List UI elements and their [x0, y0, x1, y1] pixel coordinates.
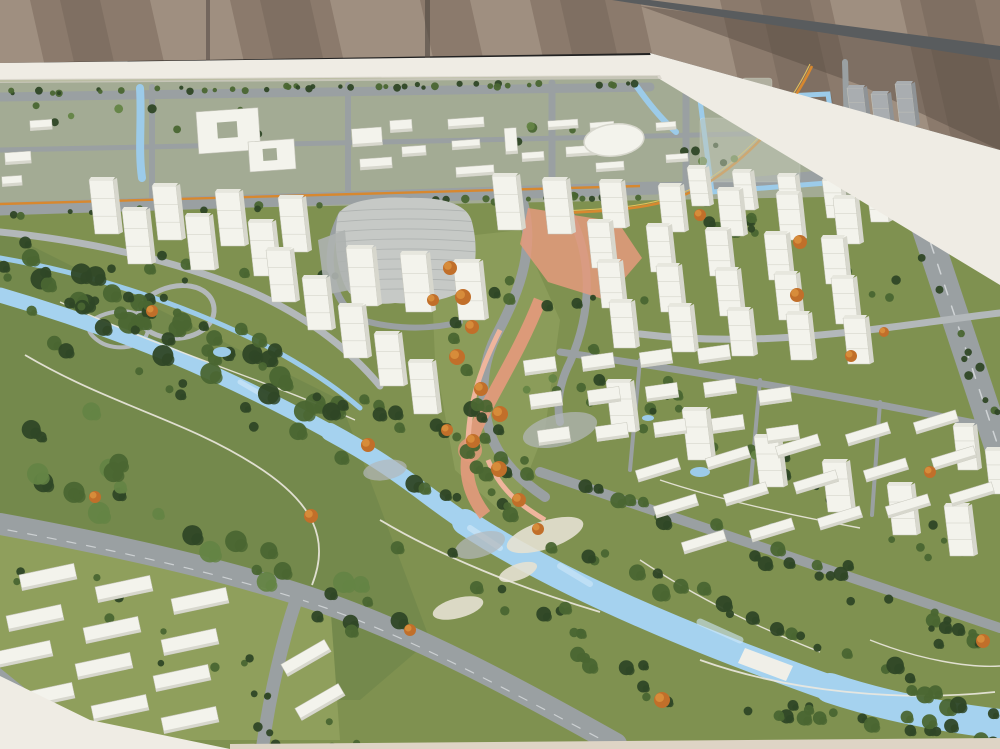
tower-roof: [774, 271, 798, 274]
tree: [657, 573, 663, 579]
tree: [869, 291, 876, 298]
tower-roof: [953, 423, 975, 426]
tower-roof: [985, 447, 1000, 450]
tree: [639, 424, 649, 434]
tower-roof: [705, 227, 729, 230]
tower-roof: [646, 223, 670, 226]
tree: [660, 591, 671, 602]
tree: [330, 592, 338, 600]
tree: [885, 293, 894, 302]
tree: [703, 587, 711, 595]
tower-roof: [374, 331, 400, 334]
tree: [191, 533, 203, 545]
tree: [3, 273, 11, 281]
tree: [505, 276, 515, 286]
tree: [245, 654, 253, 662]
tower-roof: [266, 247, 292, 250]
tower-roof: [248, 219, 274, 222]
tree: [500, 606, 509, 615]
tower-roof: [871, 91, 889, 94]
tower-roof: [821, 235, 845, 238]
building-box: [452, 139, 481, 150]
tree: [487, 83, 493, 89]
autumn-tree-highlight: [475, 383, 483, 391]
tree: [402, 84, 408, 90]
tree: [202, 88, 208, 94]
tree: [579, 196, 585, 202]
building-box: [351, 127, 382, 147]
tree: [523, 386, 531, 394]
tree: [415, 82, 420, 87]
tree: [351, 630, 359, 638]
tree: [808, 709, 814, 715]
tree: [313, 392, 322, 401]
tree: [37, 472, 50, 485]
tree: [77, 303, 85, 311]
tree: [33, 102, 40, 109]
autumn-tree-highlight: [305, 510, 313, 518]
tree: [938, 643, 944, 649]
autumn-tree-highlight: [442, 425, 449, 432]
building-roof: [504, 128, 518, 155]
tree: [41, 436, 48, 443]
tree: [477, 403, 485, 411]
tree: [452, 432, 461, 441]
tree: [48, 283, 57, 292]
tree: [91, 296, 100, 305]
tower-roof: [847, 85, 865, 88]
tree: [485, 473, 494, 482]
tree: [26, 257, 34, 265]
tree: [826, 571, 836, 581]
tree: [453, 493, 462, 502]
autumn-tree-highlight: [90, 492, 97, 499]
tree: [803, 717, 812, 726]
tree: [119, 493, 127, 501]
tree: [168, 338, 176, 346]
tower-roof: [668, 303, 692, 306]
tree: [209, 550, 222, 563]
autumn-tree-highlight: [405, 625, 412, 632]
tree: [626, 666, 635, 675]
tree: [935, 691, 943, 699]
tower-roof: [831, 275, 855, 278]
tree: [527, 83, 532, 88]
tower-roof: [609, 299, 633, 302]
tree: [244, 272, 250, 278]
tree: [200, 207, 208, 215]
tree: [149, 268, 156, 275]
tree: [744, 707, 753, 716]
building-box: [5, 151, 32, 165]
building-box: [402, 145, 427, 157]
tree: [576, 383, 586, 393]
autumn-tree-highlight: [466, 321, 474, 329]
tree: [847, 653, 853, 659]
building-box: [522, 151, 545, 162]
tree: [778, 715, 784, 721]
tower-roof: [895, 81, 913, 84]
tower-roof: [687, 165, 707, 168]
tree: [598, 488, 604, 494]
tower-roof: [764, 231, 788, 234]
tree: [158, 660, 165, 667]
tree: [424, 487, 431, 494]
tree: [399, 427, 405, 433]
tree: [173, 308, 182, 317]
tree: [8, 88, 14, 94]
tree: [911, 689, 918, 696]
tree: [748, 225, 755, 232]
tree: [906, 716, 914, 724]
tree: [383, 84, 388, 89]
building-box: [360, 157, 393, 170]
tree: [663, 521, 672, 530]
tree: [285, 382, 294, 391]
tree: [589, 664, 598, 673]
courtyard-building: [248, 139, 296, 172]
tower-roof: [822, 459, 848, 462]
tree: [871, 723, 880, 732]
building-box: [390, 119, 413, 133]
tree: [777, 548, 786, 557]
wall-seam: [425, 0, 430, 60]
tree: [341, 456, 350, 465]
tower-roof: [682, 407, 708, 410]
tree: [601, 549, 609, 557]
tree: [213, 88, 217, 92]
tree: [918, 254, 926, 262]
building-box: [504, 128, 518, 155]
tree: [585, 485, 593, 493]
tree: [297, 430, 308, 441]
tree: [421, 85, 425, 89]
tower-roof: [606, 379, 632, 382]
tree: [45, 271, 51, 277]
tree: [176, 327, 186, 337]
tree: [965, 349, 972, 356]
tree: [160, 294, 168, 302]
tree: [829, 708, 838, 717]
tree: [230, 86, 236, 92]
autumn-tree-highlight: [513, 494, 521, 502]
tree: [765, 562, 774, 571]
tree: [338, 84, 342, 88]
tree: [50, 90, 55, 95]
autumn-tree-highlight: [925, 467, 932, 474]
tree: [364, 399, 370, 405]
tree: [520, 456, 529, 465]
courtyard-hole: [217, 121, 238, 138]
tree: [461, 195, 469, 203]
tree: [395, 411, 404, 420]
tree: [367, 601, 373, 607]
tree: [796, 631, 805, 640]
building-box: [666, 153, 689, 163]
tree: [958, 330, 965, 337]
tree: [25, 241, 32, 248]
tower-roof: [408, 359, 434, 362]
building-box: [548, 119, 579, 130]
tree: [931, 609, 939, 617]
tree: [90, 410, 101, 421]
tower-roof: [599, 179, 623, 182]
tree: [342, 404, 349, 411]
tree: [993, 713, 1000, 720]
tower-roof: [786, 311, 810, 314]
tree: [157, 251, 167, 261]
autumn-tree-highlight: [846, 351, 853, 358]
tree: [266, 729, 273, 736]
tree: [643, 685, 650, 692]
tower-roof: [727, 307, 751, 310]
tree: [716, 523, 724, 531]
tree: [379, 413, 387, 421]
tower-roof: [215, 189, 241, 192]
tree: [506, 471, 513, 478]
tree: [73, 493, 80, 500]
tree: [527, 122, 535, 130]
tree: [317, 616, 324, 623]
tree: [951, 724, 959, 732]
tree: [144, 322, 152, 330]
tree: [486, 405, 494, 413]
tower-roof: [656, 263, 680, 266]
tree: [894, 664, 905, 675]
tree: [264, 693, 271, 700]
tree: [213, 337, 222, 346]
tree: [680, 585, 689, 594]
tree: [360, 583, 370, 593]
tree: [235, 539, 248, 552]
tree: [268, 357, 278, 367]
tree: [813, 644, 821, 652]
tree: [943, 616, 951, 624]
tree: [590, 295, 596, 301]
tree: [158, 513, 165, 520]
autumn-tree-highlight: [533, 524, 540, 531]
tree: [848, 564, 855, 571]
tree: [274, 349, 282, 357]
tower-roof: [185, 213, 211, 216]
tree: [726, 610, 734, 618]
tree: [482, 195, 489, 202]
tree: [588, 555, 596, 563]
tower-roof: [400, 251, 428, 254]
wall-seam: [206, 0, 210, 62]
tree: [593, 348, 599, 354]
tree: [113, 470, 125, 482]
tree: [253, 722, 263, 732]
autumn-tree-highlight: [791, 289, 799, 297]
tree: [326, 718, 333, 725]
autumn-tree-highlight: [456, 290, 465, 299]
tree: [254, 355, 261, 362]
tree: [180, 394, 186, 400]
tree: [691, 146, 700, 155]
tree: [473, 81, 479, 87]
tree: [481, 417, 487, 423]
tree: [107, 264, 116, 273]
tree: [596, 82, 603, 89]
tree: [494, 292, 501, 299]
tree: [268, 392, 281, 405]
tree: [916, 543, 925, 552]
tree: [549, 374, 558, 383]
tree: [565, 607, 573, 615]
autumn-tree-highlight: [880, 328, 886, 334]
tree: [494, 83, 501, 90]
tower-roof: [887, 482, 913, 485]
tree: [751, 217, 757, 223]
tower-roof: [89, 177, 115, 180]
tree: [526, 473, 534, 481]
tree: [251, 690, 258, 697]
tree: [846, 597, 855, 606]
tree: [498, 585, 507, 594]
landmark-terraced-building: [318, 198, 478, 304]
tower-roof: [776, 191, 800, 194]
tree: [888, 536, 895, 543]
tree: [964, 371, 973, 380]
tree: [928, 520, 937, 529]
tower-roof: [346, 245, 374, 248]
tree: [786, 715, 794, 723]
tree: [245, 406, 251, 412]
tree: [182, 277, 188, 283]
tree: [95, 274, 107, 286]
tree: [148, 104, 157, 113]
tree: [259, 339, 268, 348]
tree: [631, 80, 639, 88]
model-scene: [0, 0, 1000, 749]
building-box: [30, 119, 53, 131]
tree: [98, 89, 103, 94]
tree: [135, 367, 143, 375]
tree: [498, 429, 505, 436]
tree: [792, 704, 798, 710]
tree: [982, 397, 988, 403]
tree: [35, 87, 43, 95]
tree: [509, 298, 516, 305]
tree: [166, 385, 174, 393]
tree: [65, 349, 74, 358]
tree: [453, 337, 460, 344]
tree: [643, 664, 649, 670]
tree: [111, 292, 122, 303]
tree: [936, 286, 944, 294]
tower-roof: [278, 195, 304, 198]
tree: [581, 633, 587, 639]
tree: [173, 125, 181, 133]
tree: [840, 573, 848, 581]
scale-model-photo: [0, 0, 1000, 749]
tree: [242, 87, 249, 94]
tree: [186, 88, 193, 95]
tree: [924, 554, 932, 562]
tree: [445, 494, 452, 501]
tree: [330, 410, 341, 421]
tree: [505, 83, 511, 89]
tower-roof: [777, 173, 797, 176]
tree: [932, 727, 941, 736]
tree: [457, 81, 463, 87]
tree: [179, 86, 183, 90]
tree: [118, 87, 125, 94]
tree: [393, 84, 401, 92]
tree: [210, 371, 223, 384]
tree: [488, 488, 496, 496]
autumn-tree-highlight: [362, 439, 370, 447]
tree: [819, 717, 827, 725]
tree: [68, 113, 74, 119]
tower-roof: [658, 183, 682, 186]
tree: [526, 197, 531, 202]
tree: [347, 84, 354, 91]
tree: [120, 486, 128, 494]
autumn-tree-highlight: [977, 635, 985, 643]
tree: [17, 212, 25, 220]
tree: [635, 195, 641, 201]
autumn-tree-highlight: [695, 210, 702, 217]
tower-roof: [587, 219, 611, 222]
tree: [68, 209, 73, 214]
tower-roof: [453, 259, 481, 262]
tree: [343, 580, 356, 593]
tree: [958, 628, 966, 636]
tree: [466, 369, 473, 376]
tree: [241, 328, 249, 336]
tower-roof: [492, 173, 518, 176]
tree: [535, 80, 542, 87]
tree: [626, 81, 630, 85]
autumn-tree-highlight: [467, 435, 475, 443]
tree: [608, 81, 615, 88]
tree: [264, 87, 269, 92]
autumn-tree-highlight: [450, 350, 459, 359]
tree: [599, 379, 606, 386]
tower-roof: [717, 187, 741, 190]
tree: [642, 693, 650, 701]
tree: [817, 564, 823, 570]
tree: [551, 547, 558, 554]
tree: [178, 379, 187, 388]
tree: [945, 626, 953, 634]
tree: [310, 84, 315, 89]
tree: [910, 729, 917, 736]
tree: [476, 586, 484, 594]
tree: [588, 345, 594, 351]
tree: [789, 562, 796, 569]
tower-roof: [152, 183, 178, 186]
tree: [128, 296, 134, 302]
tree: [466, 450, 475, 459]
canal-topleft: [140, 88, 142, 178]
tree: [376, 83, 383, 90]
tree: [752, 617, 760, 625]
tower-roof: [122, 207, 148, 210]
tree: [452, 552, 458, 558]
tree: [13, 578, 20, 585]
tree: [649, 408, 656, 415]
tower-roof: [338, 303, 364, 306]
tree: [636, 571, 646, 581]
tower-roof: [732, 169, 752, 172]
tree: [484, 437, 491, 444]
tree: [589, 196, 595, 202]
courtyard-hole: [263, 148, 278, 161]
tree: [10, 211, 18, 219]
